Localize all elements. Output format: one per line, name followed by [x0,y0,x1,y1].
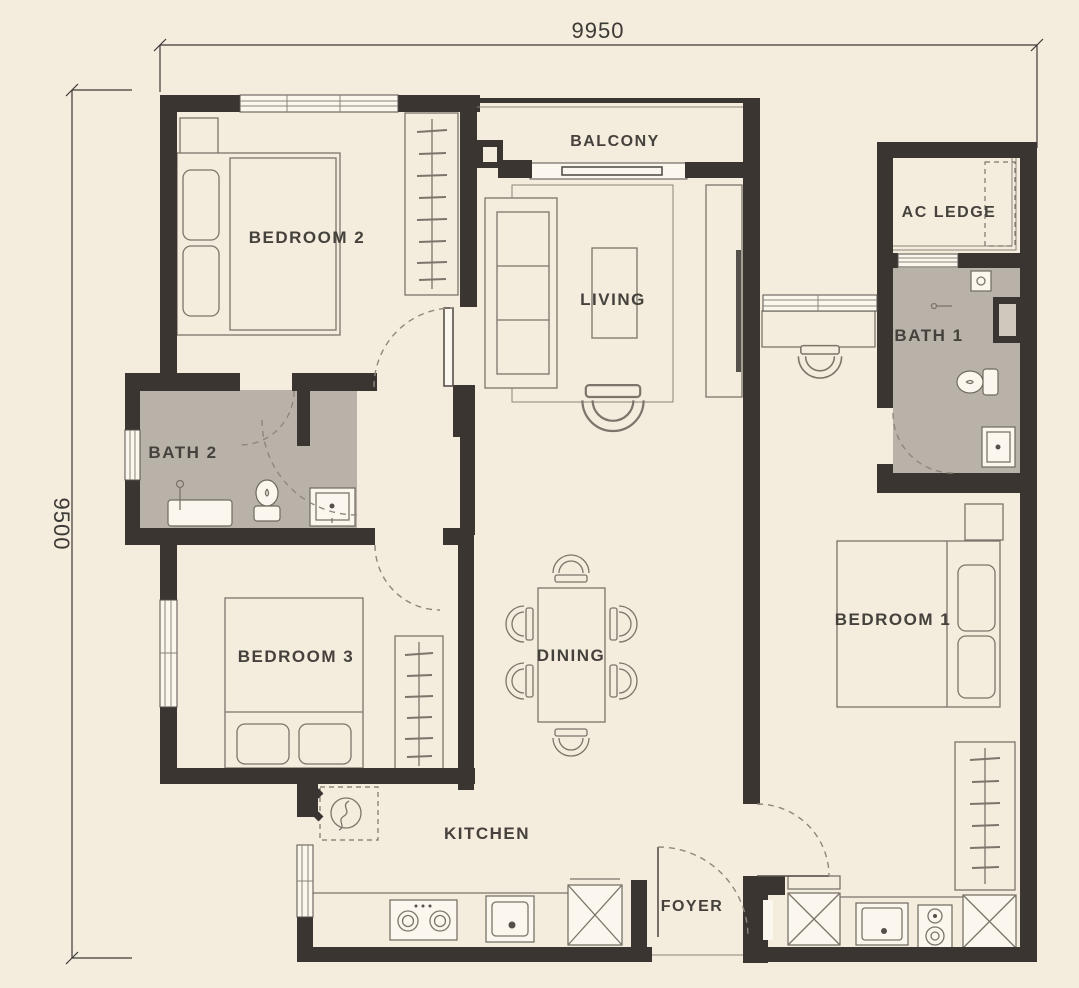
fridge-icon [314,787,378,840]
bedroom-1-furniture [837,504,1015,890]
utility-fixtures [788,876,1016,948]
window [160,600,177,707]
door-bedroom-2 [374,308,453,387]
sink-icon [982,427,1015,467]
dimension-height: 9500 [49,84,132,964]
window [240,95,398,112]
room-label-dining: DINING [537,646,606,665]
balcony-sliding-door [530,163,687,179]
shelf-icon [788,876,840,889]
tv-console-icon [706,185,742,397]
room-label-ac-ledge: AC LEDGE [902,204,997,221]
window [763,295,877,311]
wardrobe-icon [405,113,458,295]
chair-icon [506,663,533,699]
room-label-foyer: FOYER [661,898,724,915]
shower-drain-icon [971,271,991,291]
chair-icon [553,555,589,582]
louvre-window [898,254,958,267]
door-bedroom-3 [375,545,440,610]
cabinet-icon [963,895,1016,948]
chair-icon [610,663,637,699]
room-label-kitchen: KITCHEN [444,824,530,843]
dimension-height-label: 9500 [49,498,74,551]
wardrobe-icon [395,636,443,772]
kitchen-fixtures [313,787,622,945]
study-nook [762,311,875,378]
window [297,845,313,917]
chair-icon [553,729,589,756]
sofa-icon [485,198,557,388]
floor-plan: 9950 9500 BEDROOM 2 BALCONY LIVING AC LE… [0,0,1079,988]
room-label-bath-1: BATH 1 [894,326,963,345]
toilet-icon [254,480,280,521]
room-label-bedroom-3: BEDROOM 3 [238,647,354,666]
nightstand-icon [965,504,1003,540]
dimension-width: 9950 [154,18,1043,148]
room-label-balcony: BALCONY [570,133,660,150]
armchair-icon [582,385,643,431]
chair-icon [798,346,841,378]
stove-icon [390,900,457,940]
floor-plan-drawing: 9950 9500 BEDROOM 2 BALCONY LIVING AC LE… [0,0,1079,988]
chair-icon [506,606,533,642]
room-label-bath-2: BATH 2 [148,443,217,462]
wardrobe-icon [955,742,1015,890]
room-label-living: LIVING [580,290,646,309]
room-label-bedroom-2: BEDROOM 2 [249,228,365,247]
room-label-bedroom-1: BEDROOM 1 [835,610,951,629]
window [125,430,140,480]
shower-bench-icon [168,500,232,526]
dimension-width-label: 9950 [572,18,625,43]
utility-sink-icon [856,903,908,945]
chair-icon [610,606,637,642]
washer-icon [788,893,840,945]
bedroom-2-furniture [177,113,458,335]
kitchen-sink-icon [486,896,534,942]
sink-icon [310,488,355,526]
toilet-icon [957,369,998,395]
ac-ledge-detail [881,146,1016,250]
water-heater-icon [918,905,952,948]
desk-icon [762,311,875,347]
nightstand-icon [180,118,218,156]
bedroom-3-furniture [225,598,443,772]
bed-icon [225,598,363,768]
cabinet-icon [568,879,622,945]
door-bedroom-1 [757,804,829,876]
